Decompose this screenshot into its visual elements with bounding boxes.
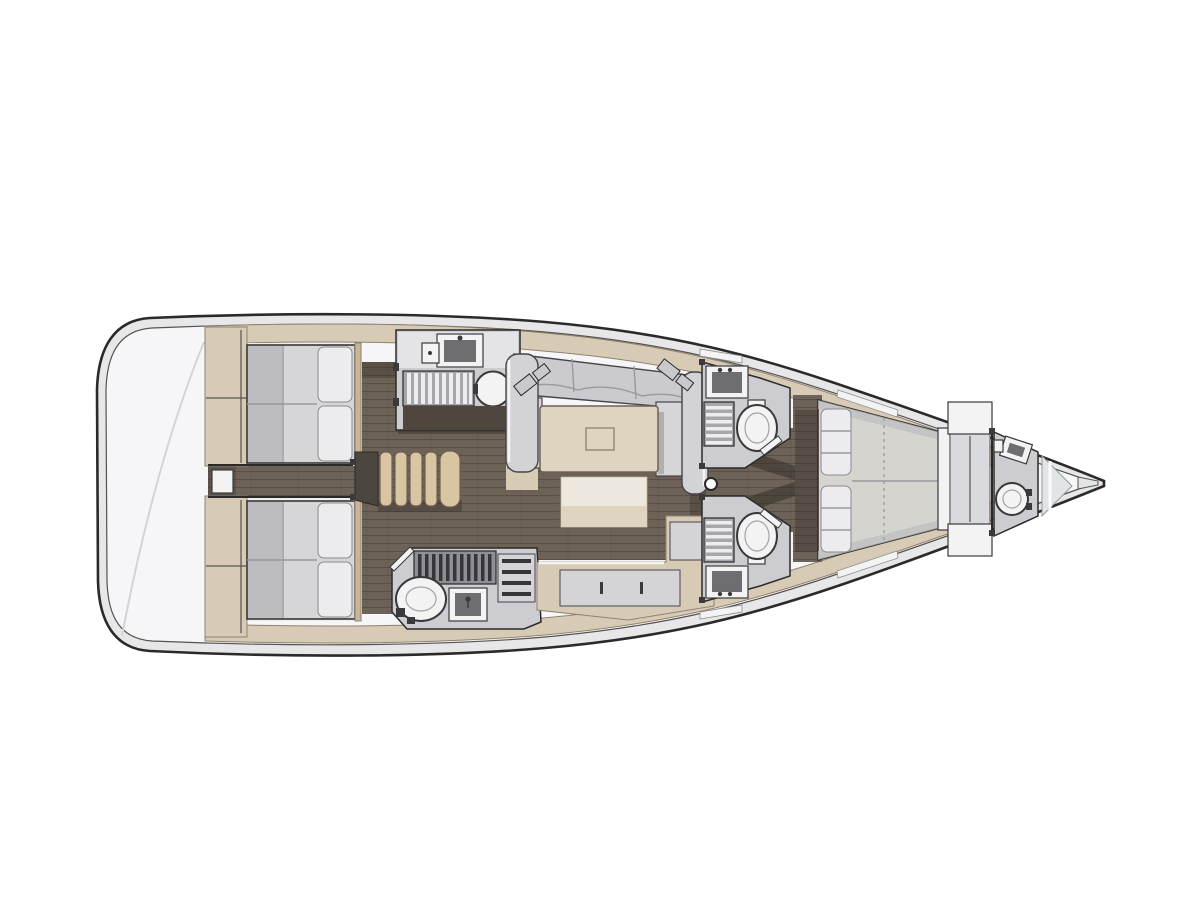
sideboard-front: [560, 570, 680, 606]
pillow: [821, 486, 851, 552]
pillow: [318, 503, 352, 558]
aft-cabin-starboard: [205, 496, 362, 637]
shower-grate: [704, 402, 734, 446]
screenshot-canvas: [0, 0, 1200, 900]
toilet: [996, 483, 1028, 515]
galley-sink-basin: [444, 340, 476, 362]
drawer-handle: [600, 582, 603, 594]
yacht-floorplan-diagram: [0, 0, 1200, 900]
locker: [948, 524, 992, 556]
washbasin-bowl: [712, 372, 742, 393]
headboard: [355, 343, 361, 465]
companionway: [355, 451, 460, 507]
galley-front-face: [403, 406, 520, 430]
faucet: [718, 592, 722, 596]
locker: [948, 402, 992, 434]
shelf-rack: [498, 554, 535, 602]
toilet-pump: [1026, 503, 1032, 510]
headboard: [355, 499, 361, 621]
faucet: [728, 592, 732, 596]
washbasin-bowl: [712, 571, 742, 592]
galley: [393, 330, 520, 430]
salon: [506, 354, 714, 620]
owner-cabin-forward: [818, 400, 992, 560]
drawer-handle: [640, 582, 643, 594]
stern-locker: [212, 470, 233, 493]
table-shadow: [658, 412, 664, 474]
pillow: [821, 409, 851, 475]
steps-housing: [355, 452, 378, 506]
faucet: [718, 368, 722, 372]
pillow: [318, 406, 352, 461]
footboard: [938, 428, 950, 530]
coffee-table: [540, 406, 658, 472]
round-basin: [476, 372, 511, 407]
toilet-pump: [396, 608, 405, 617]
faucet: [728, 368, 732, 372]
hinge: [393, 398, 399, 406]
bow-area: [1042, 456, 1098, 516]
small-locker: [994, 440, 1003, 452]
hinge: [393, 363, 399, 371]
shower-grate: [704, 518, 734, 562]
pillow: [318, 347, 352, 402]
toilet-pump: [407, 617, 415, 624]
aft-head-starboard: [390, 547, 541, 629]
aft-cabin-port: [205, 327, 362, 466]
pillow: [318, 562, 352, 617]
faucet: [458, 336, 463, 341]
toilet-pump: [1026, 489, 1032, 496]
ottoman-top: [562, 478, 646, 506]
companionway-steps: [380, 451, 460, 507]
small-basin-drain: [428, 351, 432, 355]
bow-head: [994, 432, 1038, 536]
basin-tab: [473, 384, 478, 394]
mast-post: [705, 478, 717, 490]
